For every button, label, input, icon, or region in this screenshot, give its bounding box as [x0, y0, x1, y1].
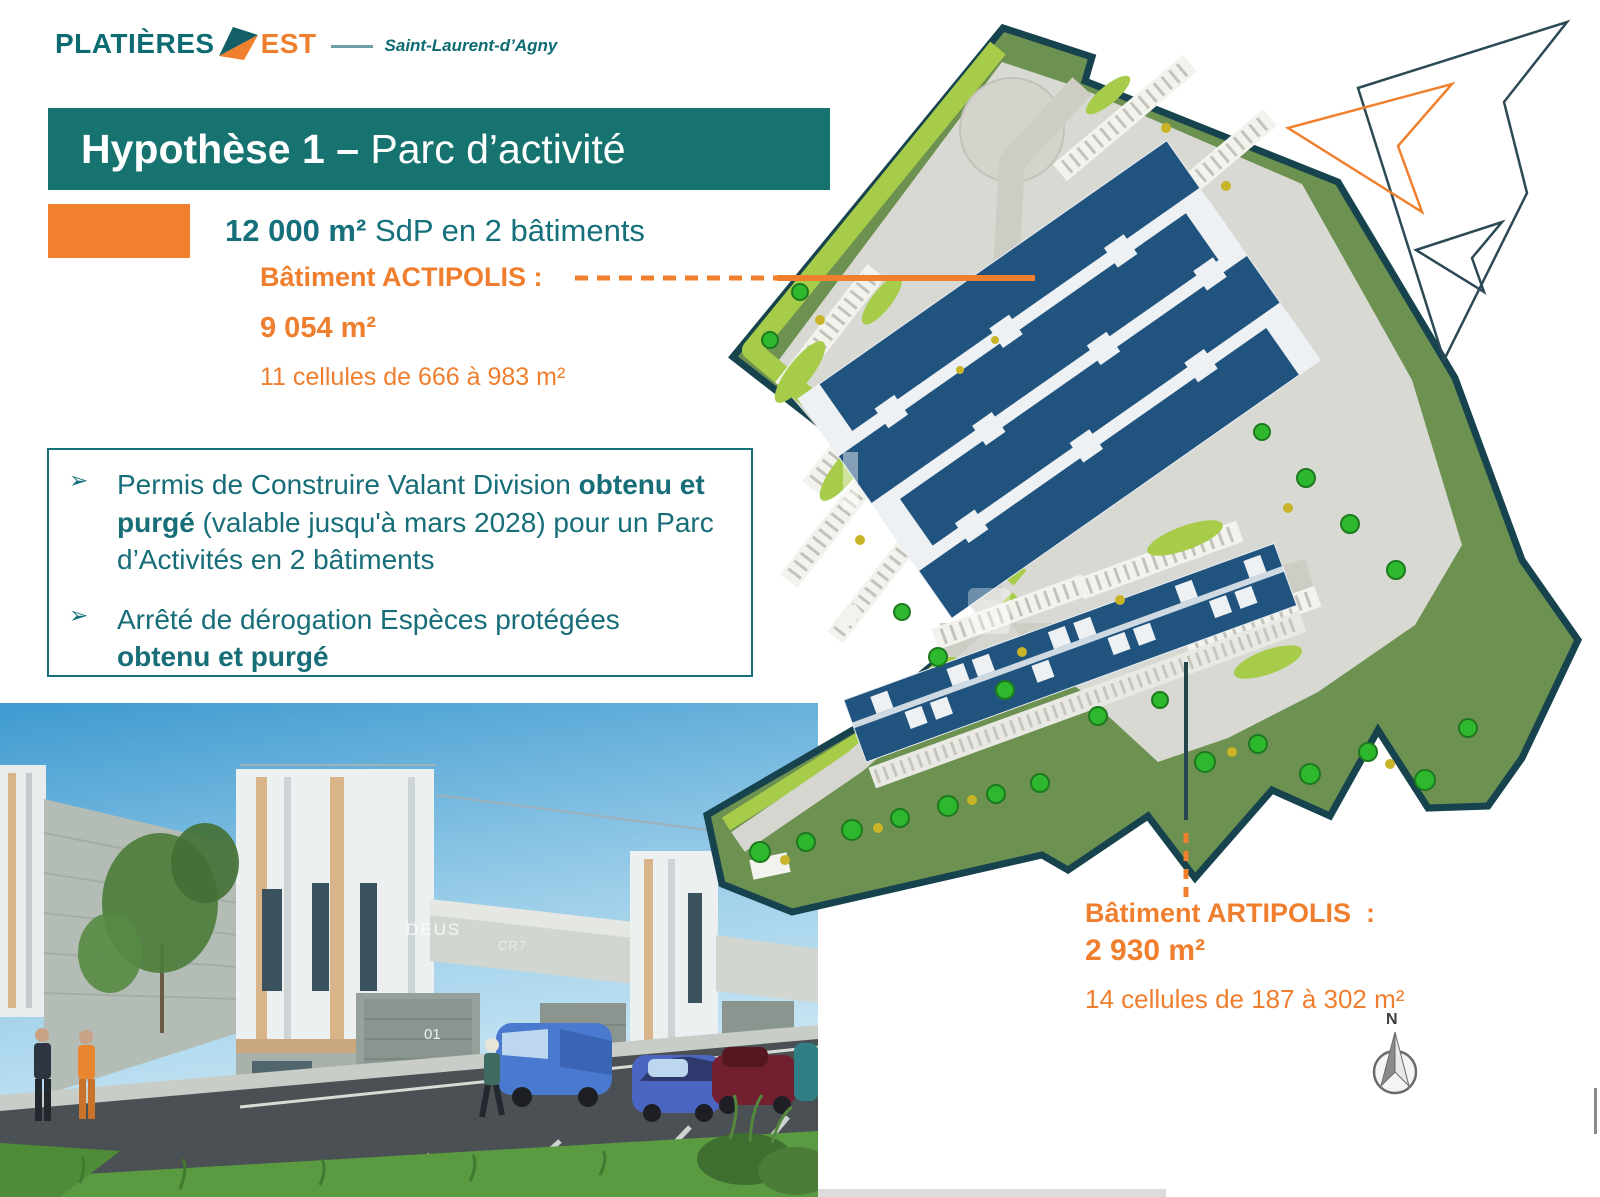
trees: [750, 284, 1477, 862]
area-summary-regular: SdP en 2 bâtiments: [366, 213, 645, 248]
paper-plane-orange-icon: [1288, 84, 1452, 212]
area-summary: 12 000 m² SdP en 2 bâtiments: [225, 213, 645, 249]
slide-canvas: PLATIÈRES EST Saint-Laurent-d’Agny Hypot…: [0, 0, 1600, 1197]
shrub-dots: [780, 123, 1395, 865]
arrow-bullet-icon: ➢: [69, 466, 117, 579]
compass-north-label: N: [1386, 1011, 1398, 1029]
actipolis-area: 9 054 m²: [260, 312, 376, 345]
photo-door-number: 01: [424, 1026, 441, 1043]
compass-icon: [1374, 1032, 1416, 1093]
bottom-gray-strip: [818, 1189, 1166, 1197]
brand-arrow-icon: [217, 26, 259, 62]
artipolis-label: Bâtiment ARTIPOLIS :: [1085, 898, 1375, 929]
paving: [770, 62, 1462, 762]
permit-item-2-text: Arrêté de dérogation Espèces protégées o…: [117, 601, 717, 676]
green-islands: [767, 70, 1306, 685]
slide-title-regular: Parc d’activité: [370, 126, 625, 173]
paper-plane-large-icon: [1358, 22, 1567, 360]
car-teal: [794, 1043, 818, 1101]
brand-location: Saint-Laurent-d’Agny: [385, 36, 558, 56]
van: [496, 1023, 612, 1107]
artipolis-area: 2 930 m²: [1085, 934, 1205, 968]
car-red: [712, 1047, 796, 1114]
car-smart: [632, 1055, 722, 1122]
shed: [835, 603, 864, 630]
right-edge-tick: [1594, 1088, 1597, 1134]
permit-item-1: ➢ Permis de Construire Valant Division o…: [69, 466, 731, 579]
brand-name-primary: PLATIÈRES: [55, 28, 215, 60]
area-summary-bold: 12 000 m²: [225, 213, 366, 248]
photo-unit-name-2: CR7: [498, 938, 527, 953]
permits-box: ➢ Permis de Construire Valant Division o…: [47, 448, 753, 677]
retention-basin: [960, 78, 1064, 182]
orange-accent-block: [48, 204, 190, 258]
left-tower: [0, 765, 46, 1017]
photo-unit-name-1: DEUS: [406, 920, 461, 940]
permit-item-2: ➢ Arrêté de dérogation Espèces protégées…: [69, 601, 731, 676]
paper-plane-small-icon: [1416, 222, 1502, 292]
artipolis-cells: 14 cellules de 187 à 302 m²: [1085, 984, 1404, 1015]
parking-rows-top: [1053, 55, 1277, 235]
brand-logo: PLATIÈRES EST Saint-Laurent-d’Agny: [55, 26, 557, 62]
actipolis-label: Bâtiment ACTIPOLIS :: [260, 262, 543, 293]
permit-item-1-text: Permis de Construire Valant Division obt…: [117, 466, 717, 579]
building-rendering-photo: [0, 703, 818, 1197]
slide-title-bold: Hypothèse 1 –: [81, 126, 370, 173]
logo-dash: [331, 45, 373, 48]
site-boundary: [707, 28, 1578, 912]
slide-title-banner: Hypothèse 1 – Parc d’activité: [48, 108, 830, 190]
arrow-bullet-icon: ➢: [69, 601, 117, 676]
actipolis-cells: 11 cellules de 666 à 983 m²: [260, 363, 565, 392]
building-artipolis-roof: [844, 543, 1307, 788]
building-actipolis-roof: [798, 141, 1320, 619]
parking-rows-left: [775, 264, 918, 643]
parking-rows-middle: [931, 521, 1321, 655]
brand-name-secondary: EST: [261, 28, 317, 60]
paper-plane-icons: [1288, 22, 1567, 360]
